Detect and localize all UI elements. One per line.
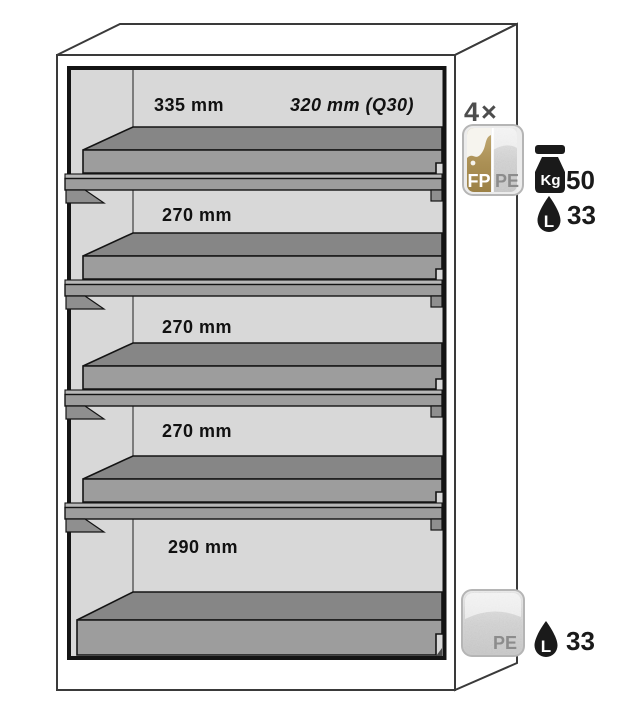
liter-unit-label: L: [544, 212, 554, 231]
pe-label: PE: [495, 171, 519, 191]
diagram-canvas: 335 mm 320 mm (Q30) 270 mm 270 mm 270 mm…: [0, 0, 629, 718]
load-capacity-value: 50: [566, 165, 595, 195]
section-3-height-label: 270 mm: [162, 317, 232, 337]
section-5-height-label: 290 mm: [168, 537, 238, 557]
sump-pe-label: PE: [493, 633, 517, 653]
pe-badge-icon: PE: [461, 589, 525, 657]
cabinet-top-face: [57, 24, 517, 55]
fp-pe-badge-icon: FP PE: [462, 124, 524, 196]
section-1-height-label: 335 mm: [154, 95, 224, 115]
volume-drop-icon: L: [538, 196, 561, 232]
section-4-height-label: 270 mm: [162, 421, 232, 441]
sump-volume-drop-icon: L: [535, 621, 558, 657]
volume-capacity-value: 33: [567, 200, 596, 230]
weight-icon: Kg: [535, 145, 565, 193]
section-1-alt-height-label: 320 mm (Q30): [290, 95, 414, 115]
kg-unit-label: Kg: [541, 172, 561, 189]
cabinet-diagram: 335 mm 320 mm (Q30) 270 mm 270 mm 270 mm…: [0, 0, 629, 718]
shelf-quantity-label: 4×: [464, 97, 499, 127]
sump-tray: [77, 592, 442, 656]
section-2-height-label: 270 mm: [162, 205, 232, 225]
sump-annotation: PE L 33: [461, 589, 595, 657]
sump-volume-capacity-value: 33: [566, 626, 595, 656]
sump-liter-unit-label: L: [541, 637, 551, 656]
fp-label: FP: [467, 171, 490, 191]
